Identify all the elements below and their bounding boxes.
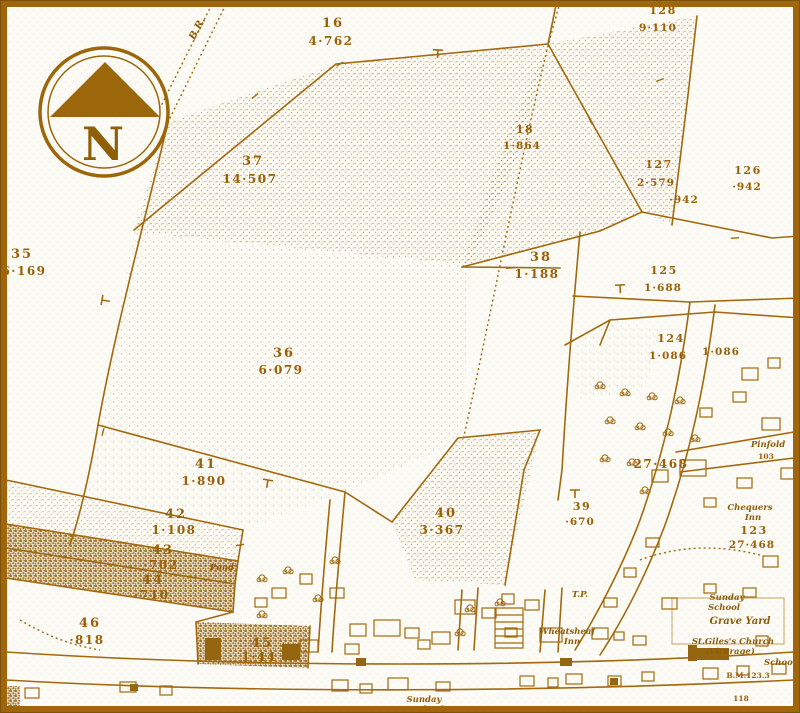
church-label-1: St.Giles's Church bbox=[692, 637, 774, 647]
parcel-39-area: ·670 bbox=[565, 516, 595, 528]
parcel-35-number: 35 bbox=[11, 247, 33, 262]
stray-area-942: ·942 bbox=[669, 194, 699, 206]
school-label: School bbox=[764, 658, 797, 668]
parcel-42-area: 1·108 bbox=[151, 523, 196, 537]
parcel-16-area: 4·762 bbox=[308, 34, 353, 48]
parcel-42-number: 42 bbox=[165, 507, 187, 522]
parcel-18-number: 18 bbox=[516, 123, 534, 136]
parcel-43-number: 43 bbox=[152, 543, 174, 558]
pond-label: Pond bbox=[209, 563, 234, 573]
parcel-124-area: 1·086 bbox=[649, 350, 687, 362]
benchmark-label: B.M.123.3 bbox=[726, 671, 769, 680]
pinfold-label: Pinfold bbox=[750, 440, 785, 450]
parcel-125-number: 125 bbox=[650, 264, 677, 277]
parcel-36-area: 6·079 bbox=[258, 363, 303, 377]
parcel-44-area: ·710 bbox=[134, 588, 169, 602]
parcel-18-area: 1·864 bbox=[503, 140, 541, 152]
parcel-41-area: 1·890 bbox=[181, 474, 226, 488]
parcel-16-number: 16 bbox=[322, 16, 344, 31]
compass-rose: N bbox=[40, 48, 168, 176]
wheatsheaf-inn-label-1: Wheatsheaf bbox=[539, 627, 596, 637]
parcel-46-area: ·818 bbox=[69, 633, 104, 647]
parcel-124-number: 124 bbox=[657, 332, 684, 345]
parcel-123-number: 123 bbox=[740, 524, 767, 537]
telegraph-post-label: T.P. bbox=[572, 590, 588, 600]
parcel-36-number: 36 bbox=[273, 346, 295, 361]
parcel-127-area: 2·579 bbox=[637, 177, 675, 189]
antique-parish-map: N 16 4·762 128 9·110 37 14·507 18 1·864 … bbox=[0, 0, 800, 713]
map-canvas: N 16 4·762 128 9·110 37 14·507 18 1·864 … bbox=[0, 0, 800, 713]
compass-north-letter: N bbox=[82, 117, 124, 171]
parcel-45-area: 1·44 bbox=[241, 650, 276, 664]
grave-yard-label: Grave Yard bbox=[709, 616, 770, 627]
parcel-37-number: 37 bbox=[242, 154, 264, 169]
pinfold-number: 103 bbox=[758, 452, 774, 461]
parcel-38-number: 38 bbox=[530, 250, 552, 265]
sunday-school-label-2: School bbox=[708, 603, 741, 613]
parcel-40-area: 3·367 bbox=[419, 523, 464, 537]
value-118-label: 118 bbox=[733, 694, 749, 703]
parcel-128-area: 9·110 bbox=[639, 22, 677, 34]
chequers-inn-label-1: Chequers bbox=[727, 503, 772, 513]
parcel-37-area: 14·507 bbox=[223, 172, 278, 186]
parcel-127-number: 127 bbox=[645, 158, 672, 171]
parcel-44-number: 44 bbox=[142, 573, 164, 588]
chequers-inn-label-2: Inn bbox=[744, 513, 761, 523]
wheatsheaf-inn-label-2: Inn bbox=[563, 637, 580, 647]
stray-area-27468: 27·468 bbox=[634, 457, 689, 471]
parcel-35-area: 6·169 bbox=[1, 264, 46, 278]
parcel-40-number: 40 bbox=[435, 506, 457, 521]
parcel-41-number: 41 bbox=[195, 457, 217, 472]
stray-area-1086: 1·086 bbox=[702, 346, 740, 358]
bottom-sunday-label-1: Sunday bbox=[407, 695, 443, 705]
church-label-2: (Vicarage) bbox=[705, 646, 755, 657]
parcel-39-number: 39 bbox=[573, 500, 591, 513]
parcel-43-area: ·702 bbox=[143, 558, 178, 572]
parcel-126-number: 126 bbox=[734, 164, 761, 177]
sunday-school-label-1: Sunday bbox=[710, 593, 746, 603]
parcel-46-number: 46 bbox=[79, 616, 101, 631]
parcel-125-area: 1·688 bbox=[644, 282, 682, 294]
parcel-38-area: 1·188 bbox=[514, 267, 559, 281]
parcel-123-area: 27·468 bbox=[729, 539, 775, 551]
parcel-45-number: 45 bbox=[251, 636, 273, 651]
parcel-126-area: ·942 bbox=[732, 181, 762, 193]
